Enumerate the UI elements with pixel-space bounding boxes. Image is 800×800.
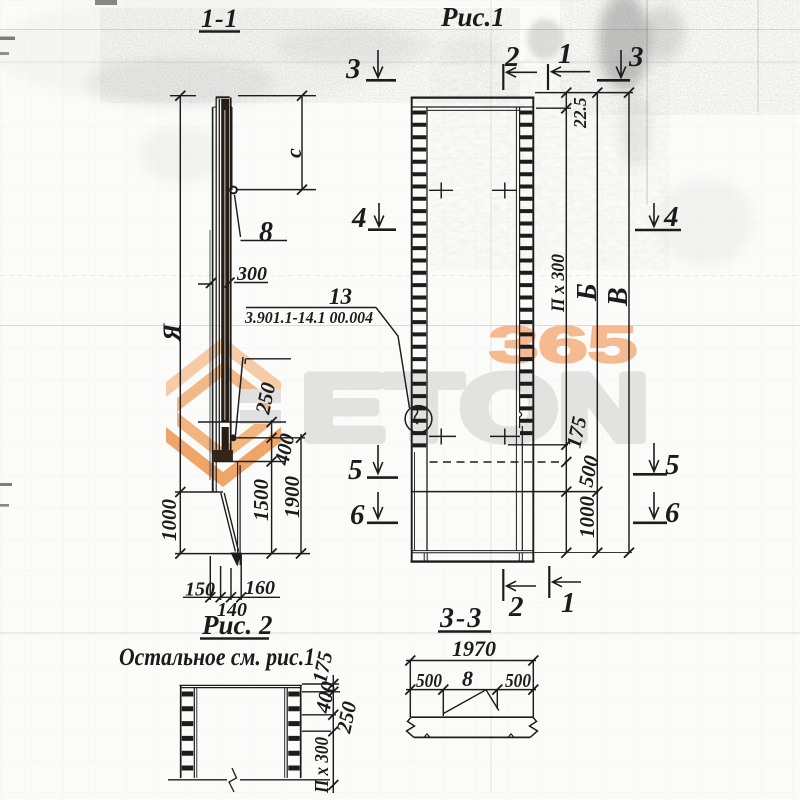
svg-text:1970: 1970 xyxy=(452,636,496,661)
svg-text:П х 300: П х 300 xyxy=(311,737,333,794)
svg-text:1-1: 1-1 xyxy=(201,4,239,33)
svg-text:160: 160 xyxy=(245,577,275,599)
svg-text:В: В xyxy=(603,287,634,307)
svg-text:500: 500 xyxy=(505,671,531,692)
svg-text:500: 500 xyxy=(416,671,442,692)
svg-text:22.5: 22.5 xyxy=(570,97,590,129)
svg-text:Рис. 2: Рис. 2 xyxy=(201,610,273,640)
svg-text:3-3: 3-3 xyxy=(439,603,483,634)
svg-text:2: 2 xyxy=(504,41,520,73)
svg-text:4: 4 xyxy=(663,201,679,233)
svg-text:П х 300: П х 300 xyxy=(548,254,569,313)
svg-text:Б: Б xyxy=(572,283,603,302)
svg-text:2: 2 xyxy=(508,591,524,623)
svg-text:5: 5 xyxy=(665,449,680,481)
svg-text:8: 8 xyxy=(259,217,273,248)
svg-text:3: 3 xyxy=(628,41,644,73)
svg-text:1000: 1000 xyxy=(157,499,181,542)
svg-text:Остальное см. рис.1: Остальное см. рис.1 xyxy=(119,644,315,671)
svg-text:5: 5 xyxy=(348,454,363,486)
svg-text:1500: 1500 xyxy=(249,479,273,522)
svg-text:8: 8 xyxy=(462,666,473,691)
svg-text:4: 4 xyxy=(351,202,367,234)
svg-text:c: c xyxy=(281,148,306,158)
svg-text:Я: Я xyxy=(159,323,186,342)
svg-text:3.901.1-14.1 00.004: 3.901.1-14.1 00.004 xyxy=(244,308,373,327)
svg-text:1: 1 xyxy=(558,38,573,70)
svg-text:6: 6 xyxy=(350,499,365,531)
svg-text:6: 6 xyxy=(665,497,680,529)
svg-text:13: 13 xyxy=(329,284,352,309)
svg-text:1: 1 xyxy=(561,587,576,619)
svg-text:1000: 1000 xyxy=(575,496,599,539)
svg-text:Рис.1: Рис.1 xyxy=(440,2,505,32)
svg-text:365: 365 xyxy=(489,316,637,373)
svg-text:3: 3 xyxy=(345,53,361,85)
svg-text:300: 300 xyxy=(236,263,267,285)
svg-text:1900: 1900 xyxy=(280,476,304,519)
